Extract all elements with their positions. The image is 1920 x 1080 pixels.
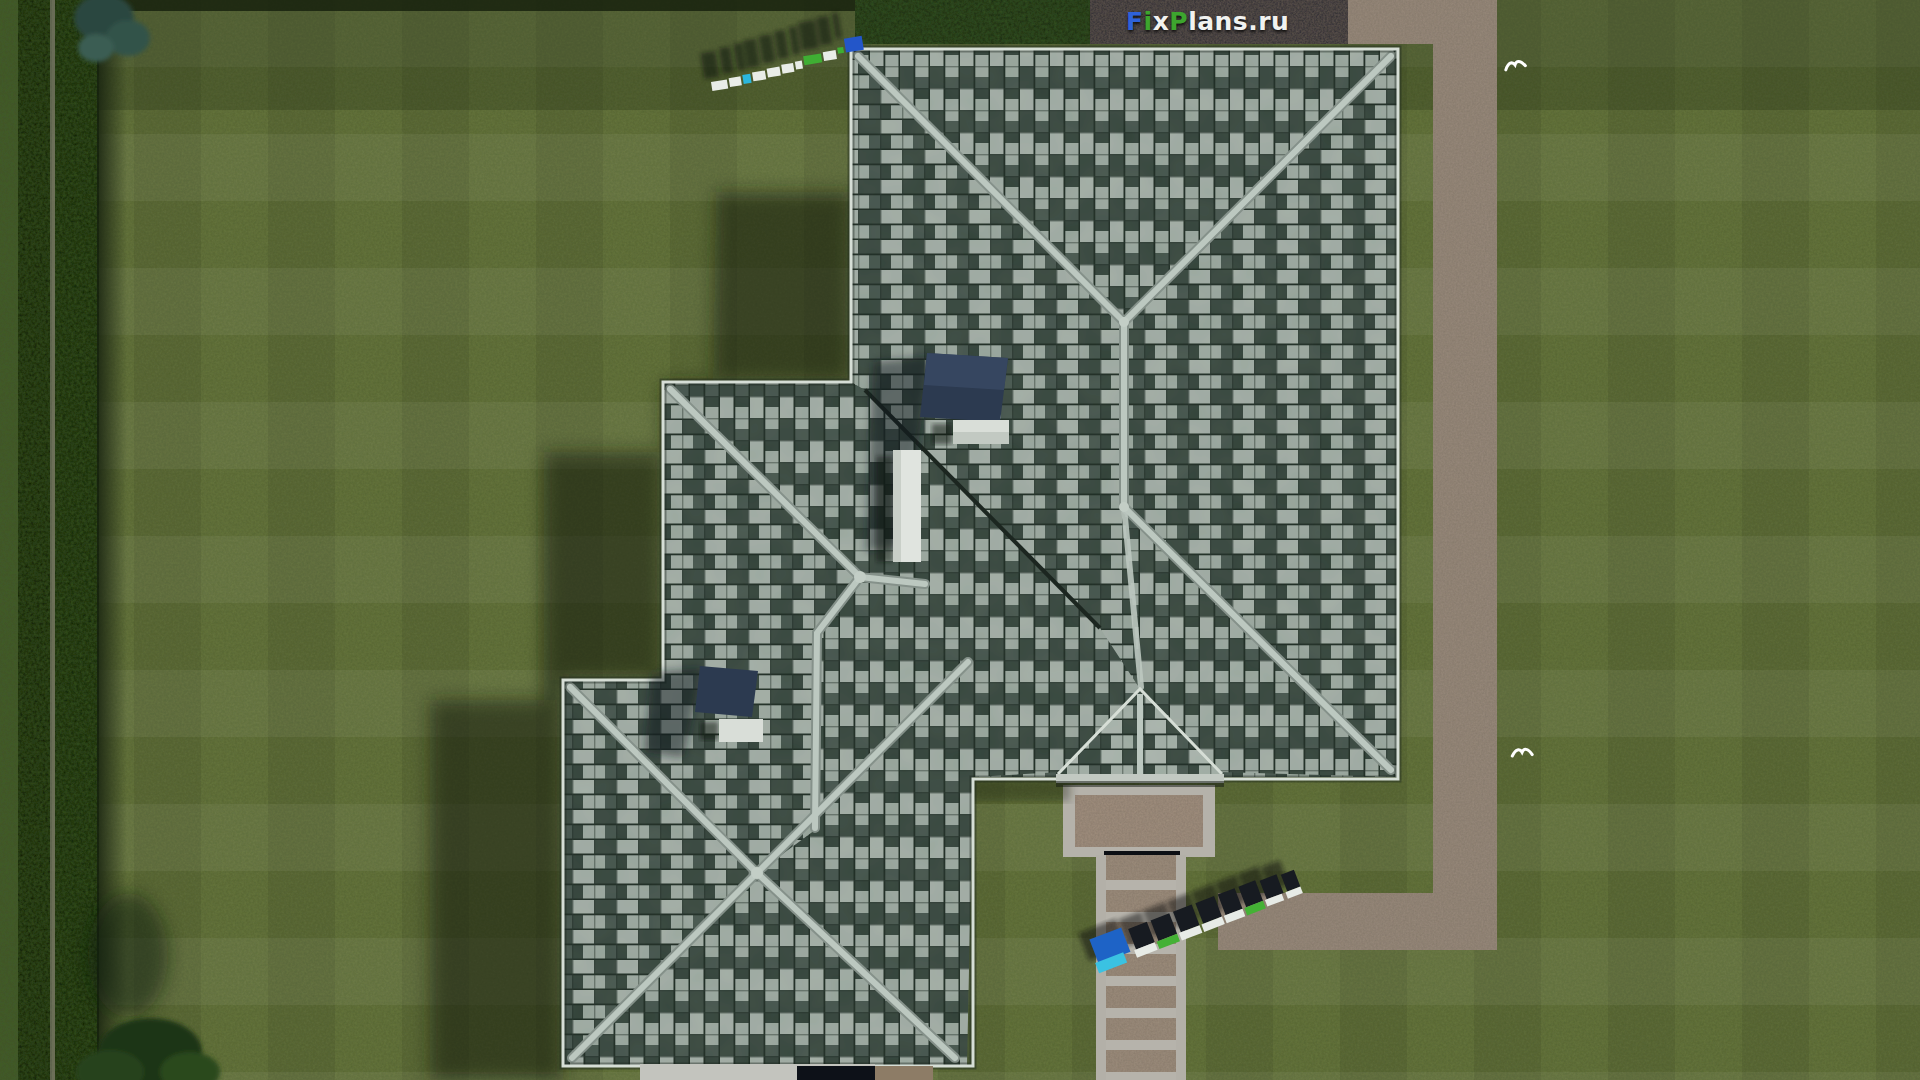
watermark-letter: i [1144, 7, 1153, 36]
render-stage: FixPlans.ru [0, 0, 1920, 1080]
entry-step [875, 1066, 933, 1080]
entry-door [797, 1066, 875, 1080]
chimney-small [700, 719, 763, 742]
scene-render [0, 0, 1920, 1080]
chimney-tall [876, 450, 921, 562]
tree-shadow [88, 893, 168, 1017]
watermark-letter: P [1169, 7, 1188, 36]
watermark-letter: x [1153, 7, 1170, 36]
fence-line [50, 0, 55, 1080]
entry-facade [640, 1064, 933, 1080]
top-hedge-line [90, 0, 865, 11]
watermark-letter: lans.ru [1188, 7, 1289, 36]
gravel-path-top [1345, 0, 1443, 44]
watermark-letter: F [1126, 7, 1144, 36]
top-hedge-band [855, 0, 1095, 44]
site-watermark-logo: FixPlans.ru [1126, 7, 1356, 41]
gravel-path-right [1433, 0, 1497, 950]
